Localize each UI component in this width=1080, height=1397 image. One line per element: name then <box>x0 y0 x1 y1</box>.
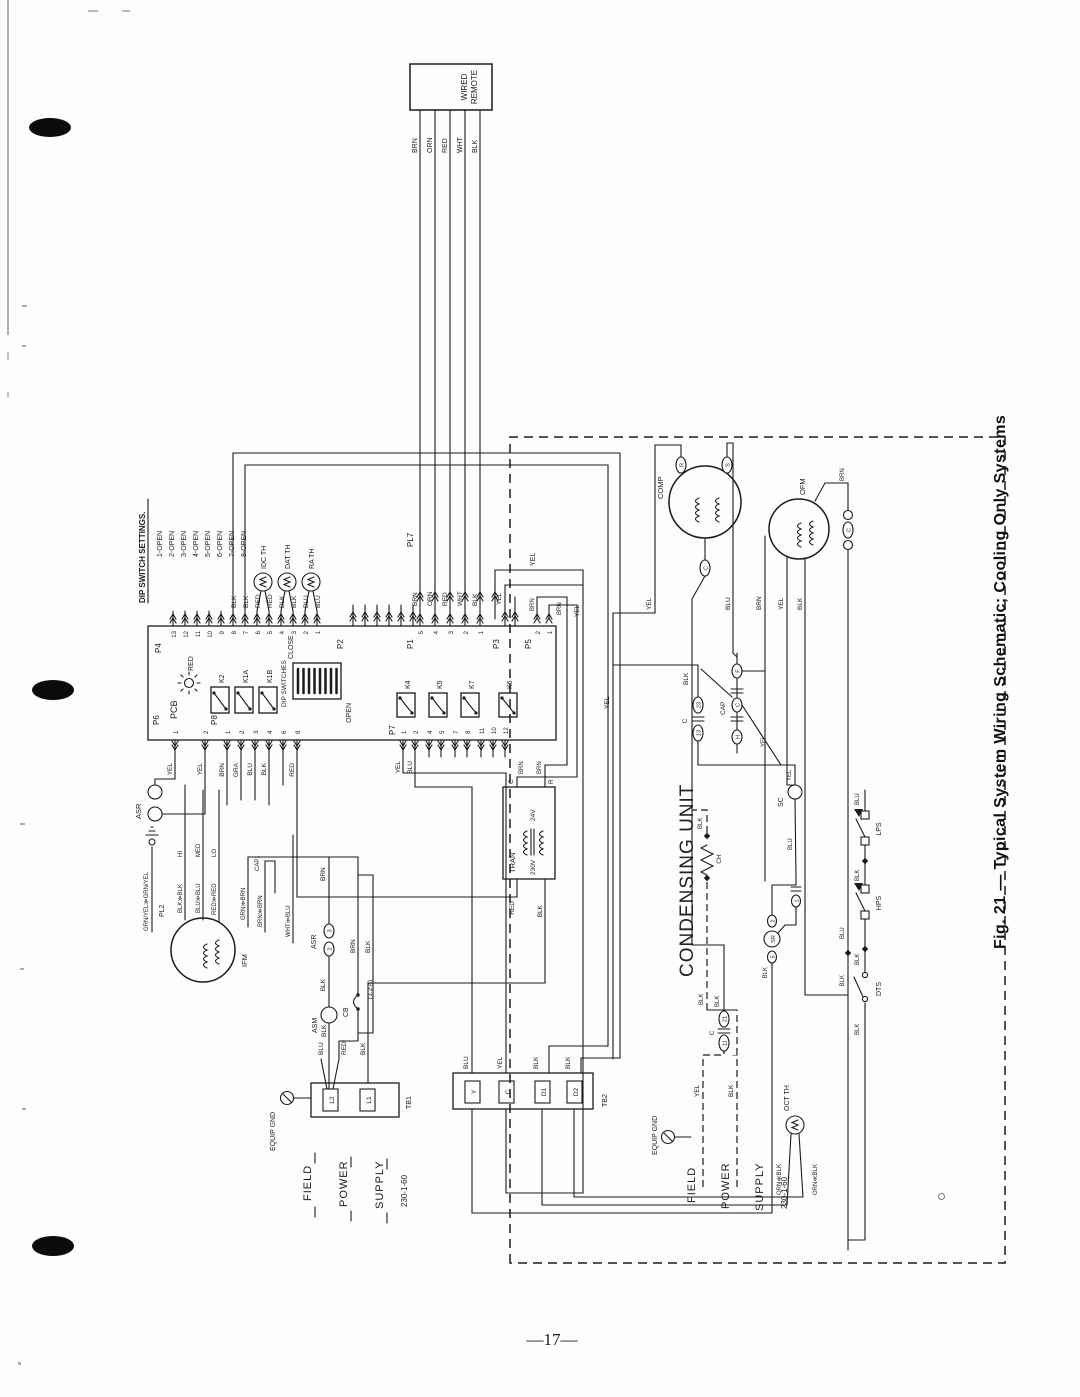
asr-label: ASR <box>134 803 143 819</box>
power-label: POWER <box>720 1162 732 1209</box>
p8-pin: 3 <box>254 730 260 734</box>
p8-label: P8 <box>210 715 219 725</box>
ra-th-label: RA TH <box>309 549 316 570</box>
pressure-switch-line: DTS HPS LPS <box>848 790 883 1240</box>
equip-gnd-label: EQUIP GND <box>270 1112 277 1151</box>
wire-label-brn: BRN <box>320 867 327 881</box>
contactor-23: 23 <box>697 702 703 708</box>
tran-r-terminal: R <box>548 779 555 784</box>
relay-k6: K6 <box>499 680 517 717</box>
oct-wire-label: ORN≪BLK <box>813 1164 819 1195</box>
cap-f-terminal: F <box>736 669 742 673</box>
wire-label-blu: BLU <box>725 597 732 610</box>
led-label: RED <box>188 656 195 671</box>
scan-artifact <box>88 10 98 12</box>
p4-pin: 13 <box>172 630 178 637</box>
relay-k1b: K1B <box>259 669 277 713</box>
p2-label: P2 <box>336 639 345 649</box>
wire-label-wht: WHT <box>457 136 464 153</box>
p4-pin: 3 <box>292 630 298 634</box>
wire-label-blk: BLK <box>728 1084 735 1097</box>
p5-wire-label: BRN <box>530 598 536 611</box>
wire-label-blk: BLK <box>699 994 705 1005</box>
sr-terminal-1: 1 <box>795 899 801 902</box>
sr-terminal-5: 5 <box>771 955 777 958</box>
sr-terminal-2: 2 <box>771 919 777 922</box>
p3-label: P3 <box>492 639 501 649</box>
power-label: POWER <box>338 1160 350 1207</box>
p6-pin: 2 <box>204 730 210 734</box>
wire-label-yel: YEL <box>197 763 204 776</box>
p8-pin: 4 <box>268 730 274 734</box>
p8-wire-label: BLU <box>247 763 254 776</box>
speed-lo-label: LO <box>212 849 218 857</box>
dat-th-label: DAT TH <box>285 544 292 569</box>
wire-label-blu: BLU <box>855 793 861 805</box>
asr-terminal-3: 3 <box>328 929 334 932</box>
wire-label-blk: BLK <box>855 1024 861 1035</box>
scan-artifact <box>20 968 24 970</box>
ifm-wire-label: RED≫RED <box>212 883 218 915</box>
relay-k2: K2 <box>211 674 229 713</box>
relay-k5-label: K5 <box>437 680 444 689</box>
wire-label-red: RED <box>442 138 449 153</box>
p7-pin: 4 <box>428 730 434 734</box>
relay-k4-label: K4 <box>405 680 412 689</box>
transformer: TRAN 24V 230V C R BRN BRN RED BLK <box>368 761 555 1083</box>
p8-pin: 1 <box>226 730 232 734</box>
tb1-l2-terminal: L2 <box>329 1096 336 1104</box>
dip-setting-item: 3-OPEN <box>181 531 188 557</box>
p7-pin: 11 <box>480 727 486 734</box>
wire-label-blk: BLK <box>840 975 846 986</box>
p4-pin: 1 <box>316 630 322 634</box>
wire-label-yel: YEL <box>497 1056 504 1069</box>
wire-label-brn: BRN <box>840 468 846 481</box>
scan-artifact <box>18 1362 21 1365</box>
p4-pin: 12 <box>184 630 190 637</box>
p1-wire-label: ORN <box>427 591 434 606</box>
p5-pin: 2 <box>536 630 542 634</box>
ifm-wire-label: WHT≫BLU <box>286 905 292 937</box>
dts-label: DTS <box>876 982 883 996</box>
ch-label: CH <box>716 854 723 864</box>
wire-label-blk: BLK <box>797 597 804 610</box>
pl2-label: PL2 <box>159 904 166 917</box>
dip-block-label: DIP SWITCHES <box>281 660 288 707</box>
wire-label-brn: BRN <box>756 596 763 610</box>
wire-label-yel: YEL <box>761 735 767 747</box>
relay-k5: K5 <box>429 680 447 717</box>
wire-label-brn: BRN <box>537 761 543 774</box>
wired-remote-label-2: REMOTE <box>470 70 479 104</box>
pcb-label: PCB <box>169 700 179 719</box>
p8-pin: 6 <box>282 730 288 734</box>
scan-artifact <box>7 0 9 335</box>
p7-pin: 1 <box>402 730 408 734</box>
wire-label-blu: BLU <box>840 927 846 939</box>
condensing-unit: CONDENSING UNIT EQUIP GND FIELD POWER SU… <box>510 437 1005 1263</box>
p4-pin: 6 <box>256 630 262 634</box>
scan-artifact <box>7 352 9 360</box>
ifm-wire-label: GRN≫BRN <box>241 888 247 920</box>
contactor-label: C <box>709 1030 716 1035</box>
wire-label-blu: BLU <box>463 1056 470 1069</box>
field-power-supply-1: FIELD POWER SUPPLY 230-1-60 <box>302 1153 409 1223</box>
remote-wires <box>420 110 480 626</box>
tb1-block: L2 L1 TB1 BLU BLK RED BLK EQUIP GND <box>270 1024 413 1151</box>
schematic-area: WIRED REMOTE BRN ORN RED WHT BLK <box>115 55 1015 1305</box>
p7-pin: 10 <box>492 727 498 734</box>
wire-label-blk: BLK <box>855 954 861 965</box>
p4-pin: 10 <box>208 630 214 637</box>
p4-pin: 9 <box>220 630 226 634</box>
ofm-label: OFM <box>798 478 807 495</box>
p7-pin: 2 <box>414 730 420 734</box>
p6-pin: 1 <box>174 730 180 734</box>
equip-gnd-label: EQUIP GND <box>652 1116 659 1155</box>
p4-pin: 11 <box>196 630 202 637</box>
p4-pin: 7 <box>244 630 250 634</box>
tran-24v-label: 24V <box>530 809 537 821</box>
oct-wire-label: ORN≪BLK <box>777 1164 783 1195</box>
tran-230v-label: 230V <box>530 859 537 875</box>
p5-label: P5 <box>524 639 533 649</box>
contactor-l-label: L <box>733 1052 739 1056</box>
cap-c-terminal: C <box>736 703 742 707</box>
wire-label-blk: BLK <box>365 940 372 953</box>
wire-label-orn: ORN <box>427 137 434 153</box>
contactor-13: 13 <box>697 730 703 736</box>
start-relay-sr: 5 SR 2 BLK 1 <box>763 879 801 978</box>
dip-setting-item: 4-OPEN <box>193 531 200 557</box>
p5-wire-label: BRN <box>557 602 563 615</box>
p7-pin: 12 <box>504 727 510 734</box>
p1-pin: 5 <box>419 630 425 634</box>
field-label: FIELD <box>302 1165 314 1201</box>
wire-label-blk: BLK <box>360 1042 367 1055</box>
p8-wire-label: GRA <box>233 762 240 777</box>
tb2-y-terminal: Y <box>471 1089 478 1094</box>
p1-pin: 2 <box>464 630 470 634</box>
p7-pins <box>400 740 508 1073</box>
supply-label: SUPPLY <box>374 1160 386 1209</box>
p8-wire-label: BLK <box>261 762 268 775</box>
p8-wire-label: RED <box>289 763 296 777</box>
ifm-wire-label: GRN/YEL≫GRN/YEL <box>144 871 150 931</box>
relay-k1a-label: K1A <box>243 669 250 683</box>
relay-k1a: K1A <box>235 669 253 713</box>
dip-close-label: CLOSE <box>288 635 295 659</box>
wire-label-blk: BLK <box>533 1056 540 1069</box>
speed-med-label: MED <box>196 843 202 857</box>
sc-label: SC <box>778 797 785 807</box>
wired-remote: WIRED REMOTE BRN ORN RED WHT BLK <box>410 64 492 626</box>
tb2-d1-terminal: D1 <box>541 1087 548 1096</box>
led-icon <box>178 672 200 694</box>
scan-artifact <box>7 392 9 397</box>
ifm-wire-label: BRN≫BRN <box>258 895 264 927</box>
scan-artifact <box>22 305 27 307</box>
p1-wire-label: WHT <box>457 591 464 606</box>
wire-label-yel: YEL <box>604 696 611 709</box>
dip-switch-block[interactable] <box>293 663 341 699</box>
wire-label-blk: BLK <box>320 978 327 991</box>
p4-wire-label: BLK <box>231 595 238 608</box>
wire-label-blk: BLK <box>472 139 479 153</box>
compressor: COMP R S C BLU <box>656 443 741 657</box>
run-capacitor-cap: H C F CAP YEL <box>701 653 781 765</box>
p6-pins <box>172 740 208 760</box>
wiring-schematic: WIRED REMOTE BRN ORN RED WHT BLK <box>115 55 1015 1305</box>
wire-label-blk: BLK <box>565 1056 572 1069</box>
wire-label-blk: BLK <box>715 996 721 1007</box>
scan-artifact <box>22 1108 26 1110</box>
wire-label-blu: BLU <box>407 761 414 774</box>
wire-label-blk: BLK <box>537 904 544 917</box>
p8-pin: 8 <box>296 730 302 734</box>
dip-settings-heading: DIP SWITCH SETTINGS. <box>138 512 147 603</box>
p8-wire-label: BRN <box>219 763 226 777</box>
wire-label-yel: YEL <box>787 769 793 781</box>
p4-pin: 8 <box>232 630 238 634</box>
wire-label-blu: BLU <box>788 838 794 850</box>
dip-open-label: OPEN <box>346 703 353 723</box>
lps-label: LPS <box>876 822 883 836</box>
punch-hole <box>29 118 71 137</box>
comp-r-terminal: R <box>680 463 686 467</box>
contactor-21: 21 <box>723 1016 729 1022</box>
wire-label-blk: BLK <box>855 870 861 881</box>
ground-icon <box>146 827 158 845</box>
ifm-wire-label: BLU≫BLU <box>196 883 202 913</box>
p5-pin: 1 <box>548 630 554 634</box>
figure-caption: Fig. 21 — Typical System Wiring Schemati… <box>992 415 1009 949</box>
contactor-label: C <box>682 718 689 723</box>
scan-artifact <box>20 823 25 825</box>
scanned-page: WIRED REMOTE BRN ORN RED WHT BLK <box>0 0 1080 1397</box>
wired-remote-label-1: WIRED <box>460 73 469 100</box>
field-label: FIELD <box>686 1167 698 1203</box>
wire-label-blk: BLK <box>763 967 769 978</box>
tb2-label: TB2 <box>602 1094 609 1107</box>
wire-label-blu: BLU <box>318 1042 325 1055</box>
wire-label-blk: BLK <box>698 818 704 829</box>
punch-hole <box>32 680 74 700</box>
condensing-unit-title: CONDENSING UNIT <box>677 784 698 977</box>
relay-k2-label: K2 <box>219 674 226 683</box>
relay-k7: K7 <box>461 680 479 717</box>
wire-label-yel: YEL <box>496 592 503 605</box>
punch-hole <box>32 1236 74 1256</box>
wire-label-yel: YEL <box>574 604 581 617</box>
wire-label-red: RED <box>341 1041 348 1055</box>
wire-label-yel: YEL <box>530 553 537 566</box>
wire-label-brn: BRN <box>350 939 357 953</box>
pcb-board: PCB RED P4 <box>148 585 583 1073</box>
dip-setting-item: 1-OPEN <box>157 531 164 557</box>
p1-wire-label: BRN <box>412 592 419 606</box>
p4-pin: 4 <box>280 630 286 634</box>
wire-label-yel: YEL <box>167 763 174 776</box>
asr-terminal-2: 2 <box>328 947 334 950</box>
dip-setting-item: 2-OPEN <box>169 531 176 557</box>
fan-capacitor: C BRN BLU BLK <box>815 468 853 1250</box>
p6-label: P6 <box>152 715 161 725</box>
relay-k1b-label: K1B <box>267 669 274 683</box>
tb2-c-terminal: C <box>505 1089 512 1094</box>
comp-s-terminal: S <box>726 463 732 467</box>
wire-label-blk: BLK <box>321 1024 328 1037</box>
fan-cap-label: C <box>847 528 853 532</box>
comp-label: COMP <box>656 477 665 500</box>
relay-k4: K4 <box>397 680 415 717</box>
wire-label-brn: BRN <box>519 761 525 774</box>
cap-h-terminal: H <box>736 735 742 739</box>
tb2-d2-terminal: D2 <box>573 1087 580 1096</box>
p1-pin: 4 <box>434 630 440 634</box>
p4-pin: 5 <box>268 630 274 634</box>
p1-pin: 3 <box>449 630 455 634</box>
p4-pins <box>170 611 320 626</box>
asm-cb-cluster: ASM BLK 2 3 ASR BRN CB (3.2 A) BRN <box>248 857 374 1089</box>
dip-setting-item: 5-OPEN <box>205 531 212 557</box>
speed-hi-label: HI <box>178 851 184 857</box>
scan-artifact <box>22 345 26 347</box>
page-number: —17— <box>492 1330 612 1350</box>
asr-contacts-label: ASR <box>311 935 318 949</box>
dip-switch-settings: DIP SWITCH SETTINGS. 1-OPEN 2-OPEN 3-OPE… <box>138 499 248 603</box>
hps-label: HPS <box>876 895 883 910</box>
ifm-label: IFM <box>240 954 249 967</box>
supply-label: SUPPLY <box>754 1162 766 1211</box>
tb1-l1-terminal: L1 <box>366 1096 373 1104</box>
rating-label: 230-1-60 <box>400 1174 409 1207</box>
p7-label: P7 <box>388 725 397 735</box>
oct-th-label: OCT TH <box>784 1085 791 1111</box>
idc-th-label: IDC TH <box>261 546 268 569</box>
contactor-11: 11 <box>723 1040 729 1046</box>
wire-label-yel: YEL <box>778 597 785 610</box>
tb1-label: TB1 <box>406 1096 413 1109</box>
wire-label-yel: YEL <box>395 761 402 774</box>
cb-label: CB <box>343 1007 350 1017</box>
p7-pin: 8 <box>466 730 472 734</box>
p2-pins <box>350 605 416 626</box>
p4-label: P4 <box>154 643 163 653</box>
p1-pin: 1 <box>479 630 485 634</box>
ifm-wire-label: BLK≫BLK <box>178 884 184 913</box>
cap-label: CAP <box>720 702 727 715</box>
wire-label-yel: YEL <box>646 597 653 610</box>
p4-pin: 2 <box>304 630 310 634</box>
wire-label-blk: BLK <box>683 672 690 685</box>
p8-pin: 2 <box>240 730 246 734</box>
p4-wire-label: BLK <box>243 595 250 608</box>
p1-wire-label: BLK <box>472 593 479 606</box>
scan-artifact <box>122 10 130 12</box>
dip-setting-item: 6-OPEN <box>217 531 224 557</box>
pl7-label: PL7 <box>406 532 415 547</box>
p7-pin: 7 <box>454 730 460 734</box>
tran-c-terminal: C <box>508 779 515 784</box>
p1-wire-label: RED <box>442 592 449 606</box>
asm-label: ASM <box>312 1018 319 1033</box>
wire-label-yel: YEL <box>694 1084 701 1097</box>
sr-label: SR <box>771 935 777 943</box>
p1-label: P1 <box>406 639 415 649</box>
wire-label-brn: BRN <box>412 138 419 153</box>
relay-k7-label: K7 <box>469 680 476 689</box>
p7-pin: 5 <box>440 730 446 734</box>
comp-c-terminal: C <box>704 566 710 570</box>
